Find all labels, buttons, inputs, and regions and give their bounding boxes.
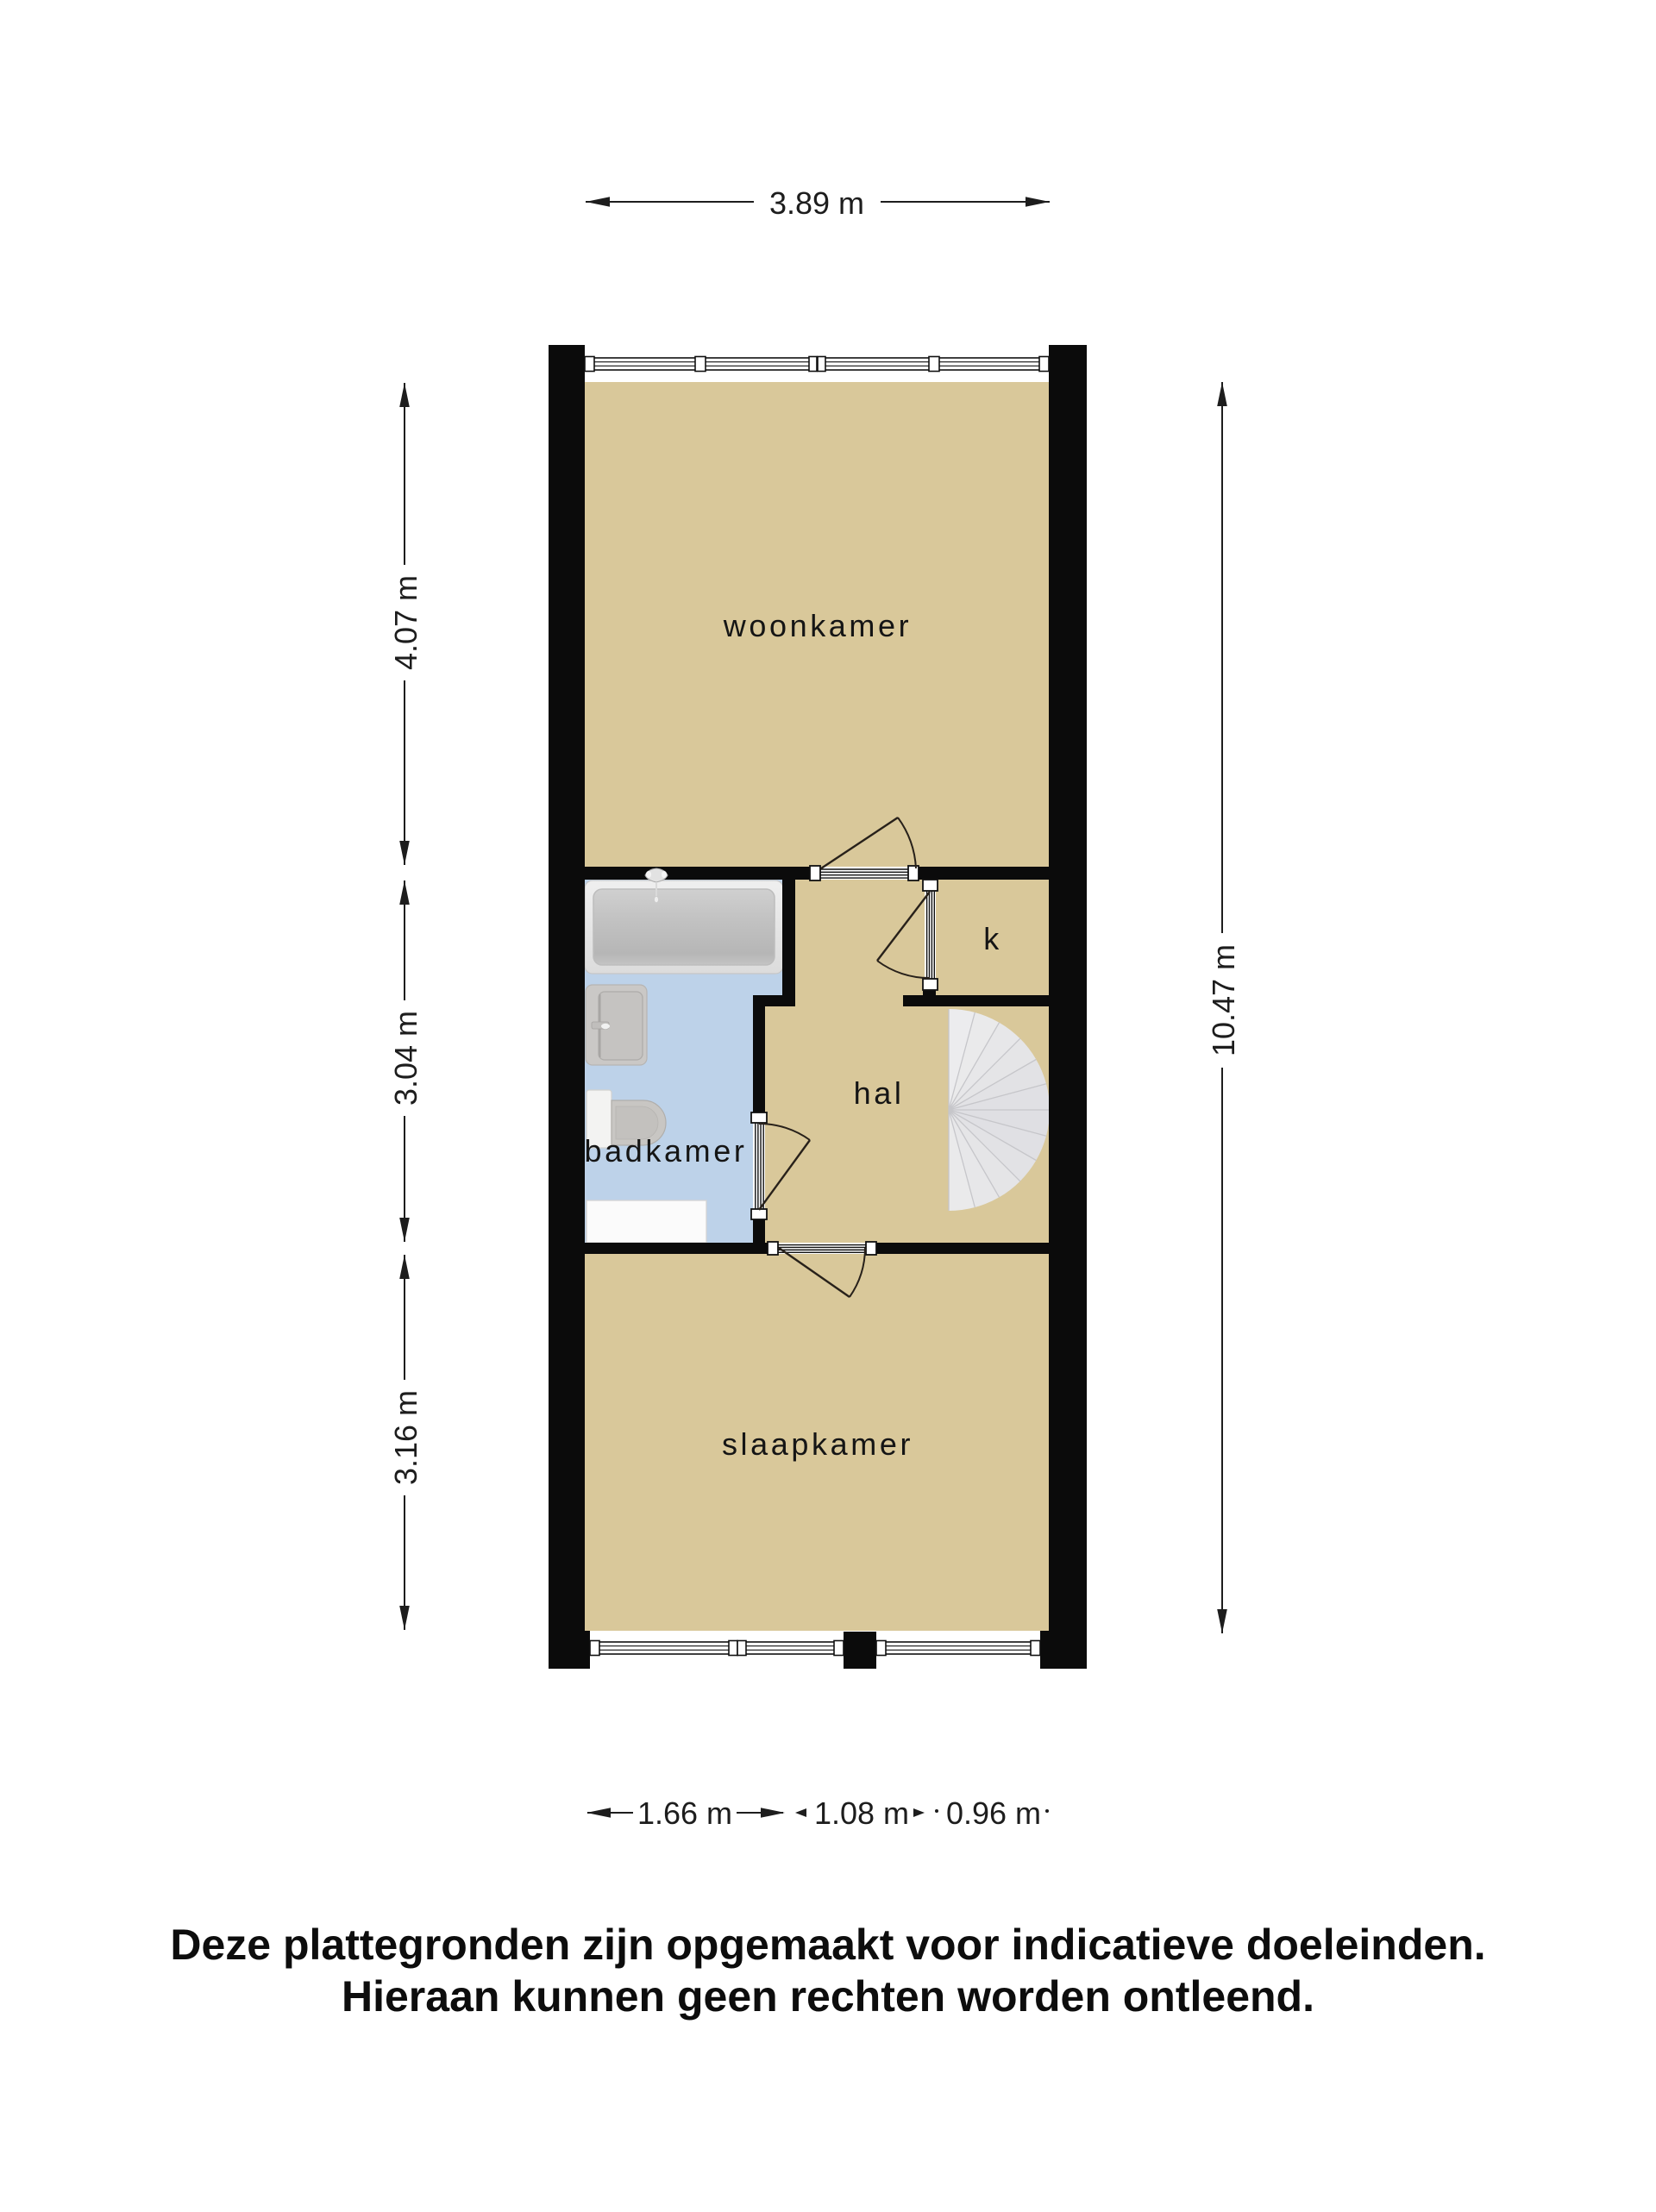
- svg-text:10.47 m: 10.47 m: [1206, 944, 1241, 1056]
- svg-text:Deze plattegronden zijn opgema: Deze plattegronden zijn opgemaakt voor i…: [170, 1921, 1485, 1969]
- svg-text:1.66 m: 1.66 m: [637, 1795, 732, 1831]
- svg-text:hal: hal: [854, 1075, 905, 1111]
- svg-text:0.96 m: 0.96 m: [946, 1795, 1041, 1831]
- svg-text:3.16 m: 3.16 m: [388, 1390, 423, 1485]
- svg-text:woonkamer: woonkamer: [723, 608, 912, 643]
- svg-text:k: k: [983, 921, 1002, 956]
- svg-text:slaapkamer: slaapkamer: [722, 1426, 913, 1462]
- svg-text:Hieraan kunnen geen rechten wo: Hieraan kunnen geen rechten worden ontle…: [342, 1972, 1314, 2021]
- svg-text:3.04 m: 3.04 m: [388, 1011, 423, 1106]
- svg-text:3.89 m: 3.89 m: [769, 185, 864, 221]
- svg-text:badkamer: badkamer: [585, 1133, 748, 1169]
- svg-text:4.07 m: 4.07 m: [388, 575, 423, 670]
- svg-text:1.08 m: 1.08 m: [814, 1795, 909, 1831]
